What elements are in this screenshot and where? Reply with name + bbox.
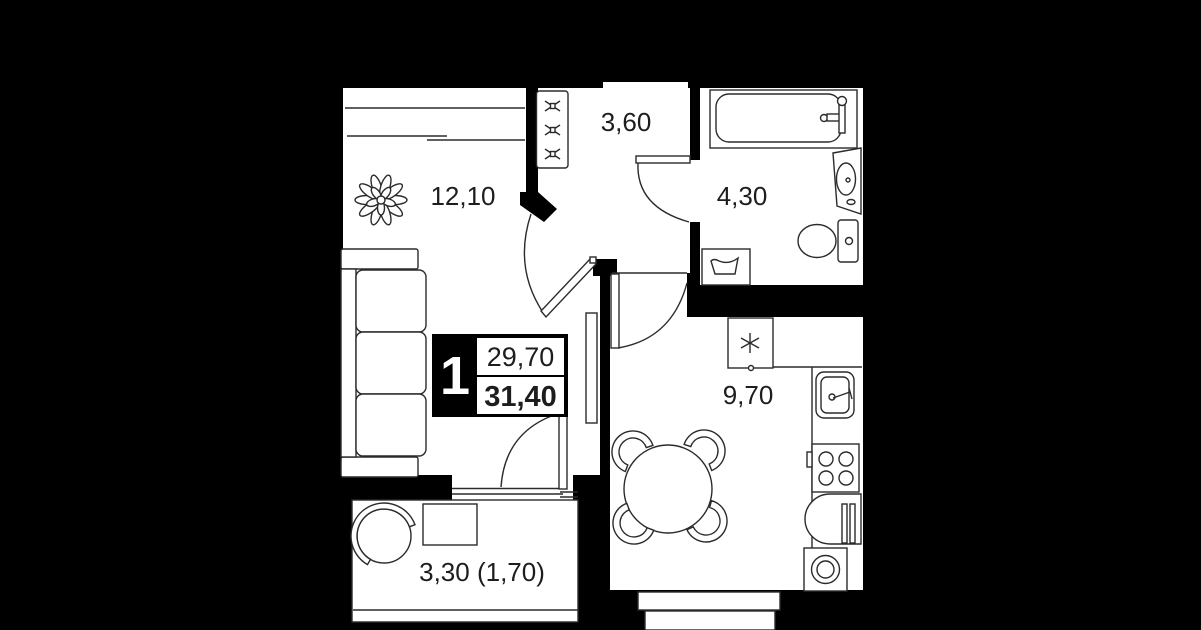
unit-total-area: 31,40 xyxy=(484,381,557,413)
kitchen-window-glass xyxy=(638,592,780,610)
wall-hall-bath-top xyxy=(690,88,700,160)
wall-hall-bath-bottom xyxy=(690,222,700,292)
wall-balcony-left xyxy=(330,475,452,500)
wardrobe-hanger-icon xyxy=(537,91,569,168)
wall-balcony-right xyxy=(578,478,610,630)
floor-plan-svg: 12,10 3,60 4,30 9,70 3,30 (1,70) 1 29,70… xyxy=(0,0,1201,630)
tv-panel xyxy=(586,313,597,423)
unit-badge: 1 29,70 31,40 xyxy=(432,334,568,417)
oven xyxy=(805,494,861,544)
bathroom-doorway xyxy=(690,158,700,224)
floor-plan-page: 12,10 3,60 4,30 9,70 3,30 (1,70) 1 29,70… xyxy=(0,0,1201,630)
stove xyxy=(807,444,859,492)
hallway-area-label: 3,60 xyxy=(601,107,652,137)
balcony-area-label: 3,30 (1,70) xyxy=(419,557,545,587)
laundry-basket xyxy=(702,249,750,285)
kitchen-window-ledge xyxy=(645,611,775,630)
sofa xyxy=(341,249,426,477)
unit-living-area: 29,70 xyxy=(487,342,555,372)
unit-rooms-count: 1 xyxy=(440,346,470,406)
bathroom-area-label: 4,30 xyxy=(717,181,768,211)
balcony-table xyxy=(423,504,477,545)
kitchen-area-label: 9,70 xyxy=(723,380,774,410)
entrance-doorway xyxy=(603,82,688,90)
washing-machine xyxy=(804,548,847,591)
wall-vent-block xyxy=(687,285,863,317)
bathroom-sink xyxy=(833,148,861,214)
kitchen-sink xyxy=(816,372,854,418)
bathtub xyxy=(710,90,857,148)
living-area-label: 12,10 xyxy=(430,181,495,211)
fridge-asterisk-icon xyxy=(728,318,773,371)
